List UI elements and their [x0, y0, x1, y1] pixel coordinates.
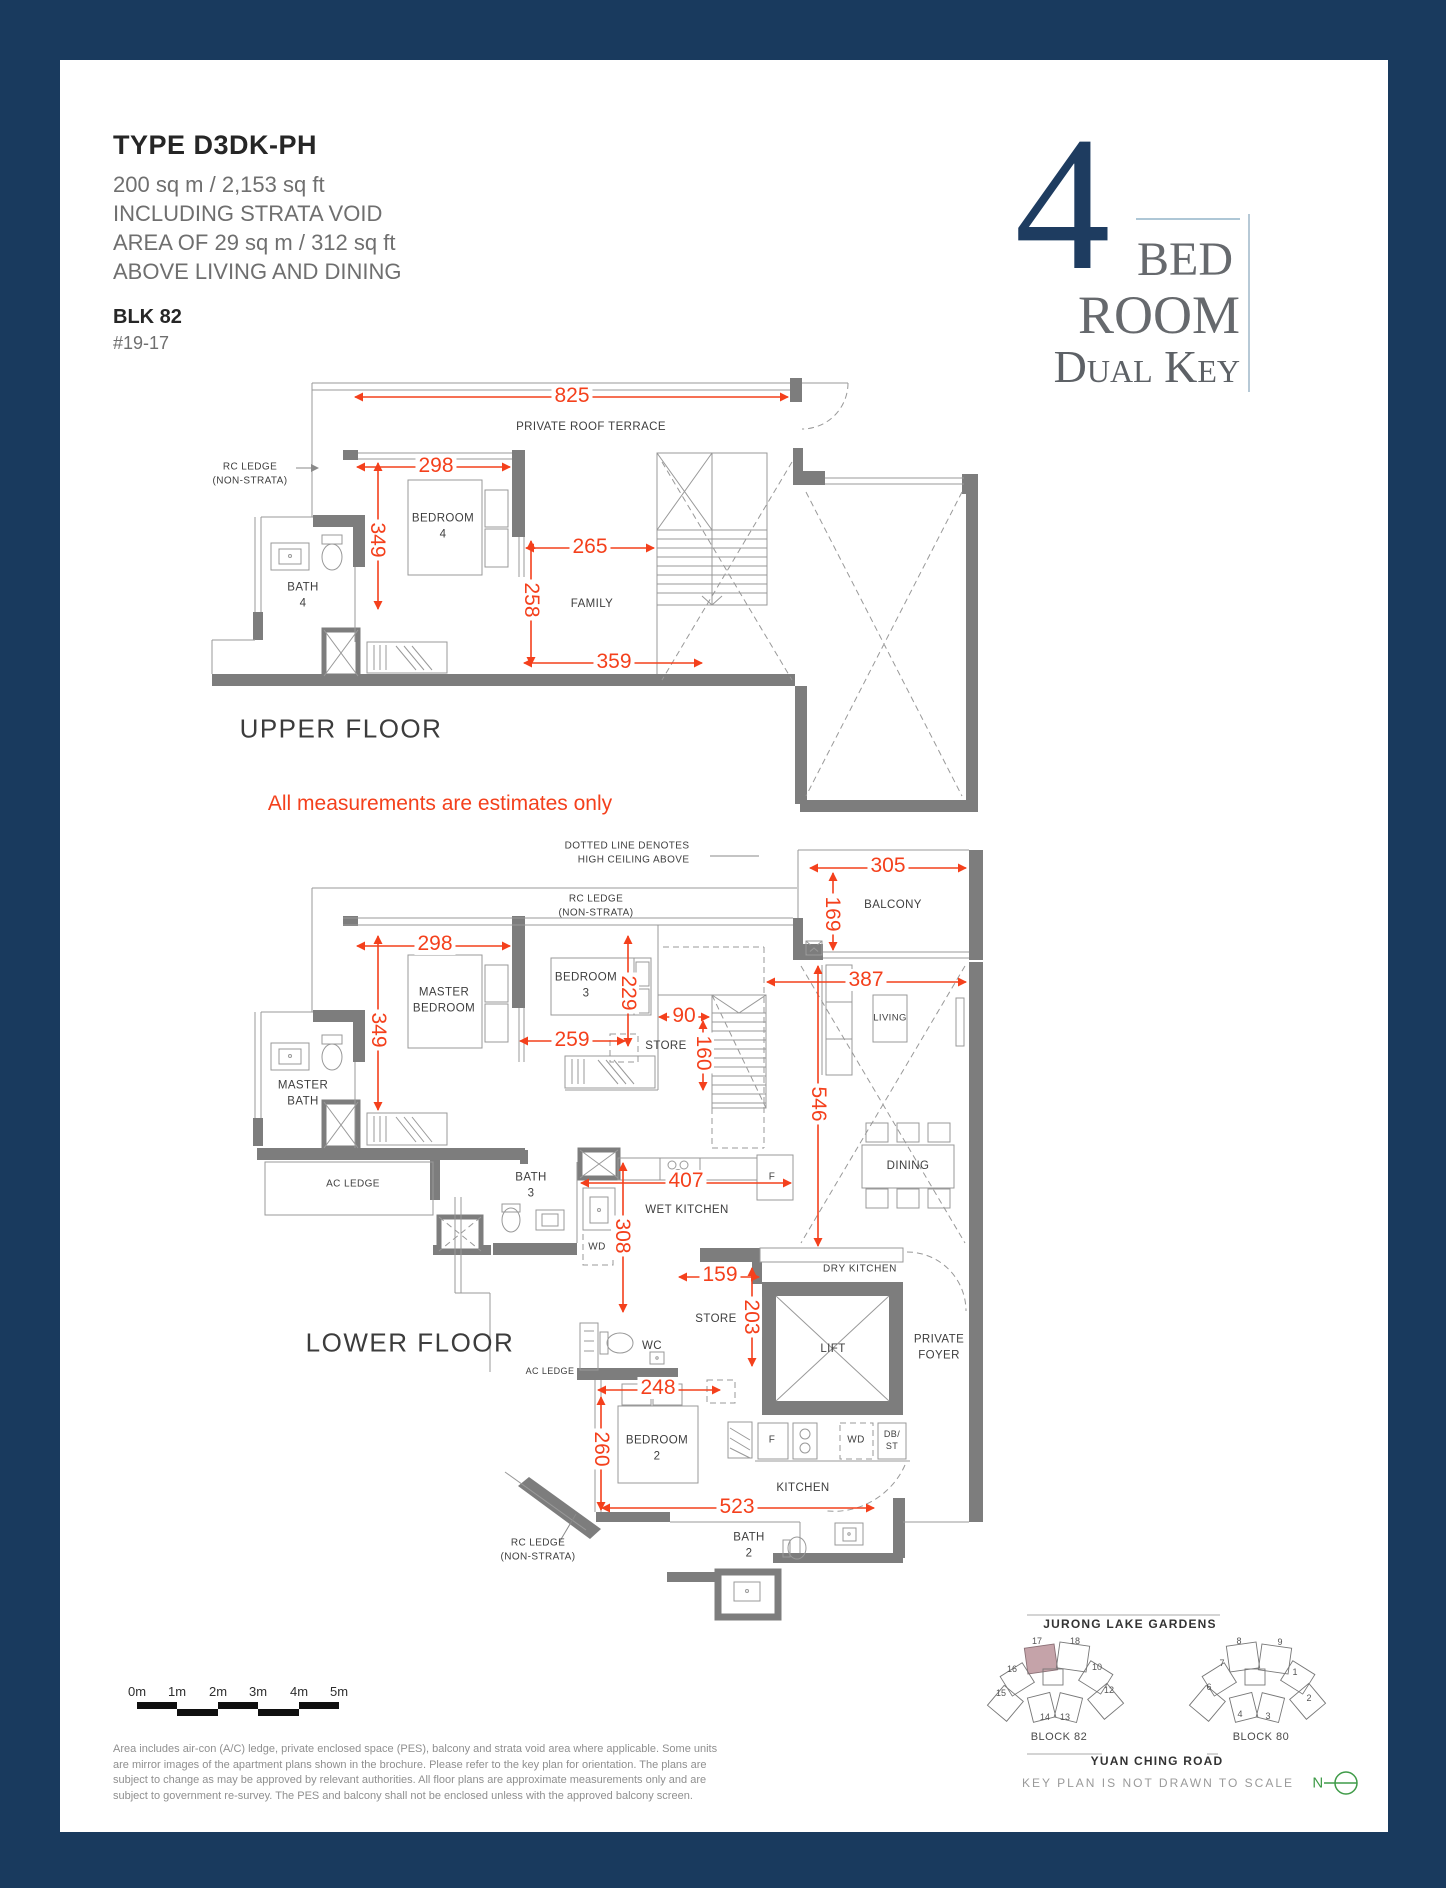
room-private-roof-terrace: PRIVATE ROOF TERRACE [516, 420, 666, 436]
keyplan-block-82-label: BLOCK 82 [1031, 1731, 1088, 1743]
dim-259: 259 [551, 1029, 592, 1051]
scale-bar-segment [137, 1702, 177, 1709]
dim-349-lower: 349 [367, 1009, 389, 1050]
dim-90: 90 [669, 1005, 698, 1027]
keyplan-unit-number: 17 [1032, 1636, 1042, 1646]
keyplan-unit-number: 4 [1237, 1709, 1242, 1719]
room-bath-2: BATH 2 [733, 1530, 764, 1561]
keyplan-unit-number: 6 [1206, 1682, 1211, 1692]
scale-label-1m: 1m [168, 1684, 186, 1699]
dim-203: 203 [740, 1296, 762, 1337]
dim-305: 305 [867, 855, 908, 877]
dim-298-lower: 298 [414, 933, 455, 955]
compass-north-label: N [1312, 1775, 1323, 1792]
dim-248: 248 [637, 1377, 678, 1399]
scale-label-4m: 4m [290, 1684, 308, 1699]
keyplan-yuan-ching-road: YUAN CHING ROAD [1091, 1754, 1224, 1768]
room-bedroom-2: BEDROOM 2 [626, 1433, 688, 1464]
rc-ledge-lower-top-label: RC LEDGE (NON-STRATA) [559, 893, 634, 920]
room-family: FAMILY [571, 597, 613, 613]
floorplan-linework [0, 0, 1446, 1888]
room-dining: DINING [887, 1159, 930, 1175]
scale-label-2m: 2m [209, 1684, 227, 1699]
room-private-foyer: PRIVATE FOYER [914, 1332, 964, 1363]
compass-icon [1324, 1772, 1357, 1794]
dim-523: 523 [716, 1496, 757, 1518]
dim-387: 387 [845, 969, 886, 991]
room-living: LIVING [873, 1013, 907, 1026]
keyplan-unit-number: 16 [1007, 1664, 1017, 1674]
washer-dryer-1-label: WD [588, 1240, 605, 1254]
scale-label-5m: 5m [330, 1684, 348, 1699]
room-master-bath: MASTER BATH [278, 1078, 328, 1109]
rc-ledge-lower-bottom-label: RC LEDGE (NON-STRATA) [501, 1537, 576, 1564]
dim-229: 229 [617, 972, 639, 1013]
dim-407: 407 [665, 1170, 706, 1192]
keyplan-unit-number: 1 [1292, 1667, 1297, 1677]
room-bath-3: BATH 3 [515, 1170, 546, 1201]
dim-160: 160 [692, 1032, 714, 1073]
room-store-2: STORE [695, 1312, 736, 1328]
fridge-1-label: F [769, 1170, 776, 1184]
keyplan-unit-number: 18 [1070, 1636, 1080, 1646]
fridge-2-label: F [769, 1433, 776, 1447]
dim-546: 546 [807, 1083, 829, 1124]
dim-359: 359 [593, 651, 634, 673]
room-kitchen: KITCHEN [776, 1481, 829, 1497]
scale-bar-segment [218, 1702, 258, 1709]
lower-floor-title: LOWER FLOOR [306, 1328, 515, 1359]
room-wet-kitchen: WET KITCHEN [645, 1203, 728, 1219]
room-bath-4: BATH 4 [287, 580, 318, 611]
db-st-label: DB/ ST [884, 1428, 900, 1452]
room-wc: WC [642, 1339, 662, 1355]
dim-265: 265 [569, 536, 610, 558]
room-dry-kitchen: DRY KITCHEN [823, 1262, 897, 1276]
keyplan-unit-number: 13 [1060, 1712, 1070, 1722]
dim-308: 308 [611, 1215, 633, 1256]
keyplan-unit-number: 10 [1092, 1662, 1102, 1672]
scale-bar-segment [299, 1702, 339, 1709]
keyplan-unit-number: 7 [1219, 1658, 1224, 1668]
dim-169: 169 [821, 893, 843, 934]
scale-label-0m: 0m [128, 1684, 146, 1699]
high-ceiling-note: DOTTED LINE DENOTES HIGH CEILING ABOVE [565, 840, 690, 867]
keyplan-unit-number: 15 [996, 1688, 1006, 1698]
dim-825: 825 [551, 385, 592, 407]
room-balcony: BALCONY [864, 898, 922, 914]
ac-ledge-2-label: AC LEDGE [524, 1365, 577, 1377]
rc-ledge-upper-label: RC LEDGE (NON-STRATA) [213, 461, 288, 488]
keyplan-scale-note: KEY PLAN IS NOT DRAWN TO SCALE [1022, 1776, 1294, 1790]
room-store-1: STORE [645, 1039, 686, 1055]
keyplan-unit-number: 3 [1265, 1711, 1270, 1721]
dim-258: 258 [520, 579, 542, 620]
measurement-note: All measurements are estimates only [268, 792, 612, 816]
ac-ledge-1-label: AC LEDGE [326, 1177, 380, 1191]
scale-label-3m: 3m [249, 1684, 267, 1699]
keyplan-jurong-lake-gardens: JURONG LAKE GARDENS [1043, 1617, 1216, 1631]
disclaimer-text: Area includes air-con (A/C) ledge, priva… [113, 1742, 725, 1804]
upper-floor-title: UPPER FLOOR [240, 714, 443, 745]
room-master-bedroom: MASTER BEDROOM [413, 985, 475, 1016]
brochure-page: TYPE D3DK-PH 200 sq m / 2,153 sq ft INCL… [0, 0, 1446, 1888]
keyplan-unit-number: 9 [1277, 1637, 1282, 1647]
dim-349-upper: 349 [366, 519, 388, 560]
keyplan-unit-number: 12 [1104, 1685, 1114, 1695]
room-bedroom-3: BEDROOM 3 [555, 970, 617, 1001]
washer-dryer-2-label: WD [847, 1433, 864, 1447]
dim-298-upper: 298 [415, 455, 456, 477]
keyplan-unit-number: 2 [1306, 1693, 1311, 1703]
room-bedroom-4: BEDROOM 4 [412, 511, 474, 542]
dim-260: 260 [590, 1428, 612, 1469]
keyplan-unit-number: 14 [1040, 1712, 1050, 1722]
scale-bar-segment [177, 1709, 218, 1716]
room-lift: LIFT [820, 1342, 845, 1358]
keyplan-unit-number: 8 [1236, 1636, 1241, 1646]
keyplan-unit-17-highlight [1024, 1644, 1057, 1674]
scale-bar-segment [258, 1709, 299, 1716]
keyplan-block-80-label: BLOCK 80 [1233, 1731, 1290, 1743]
dim-159: 159 [699, 1264, 740, 1286]
service-shafts [324, 630, 778, 1617]
